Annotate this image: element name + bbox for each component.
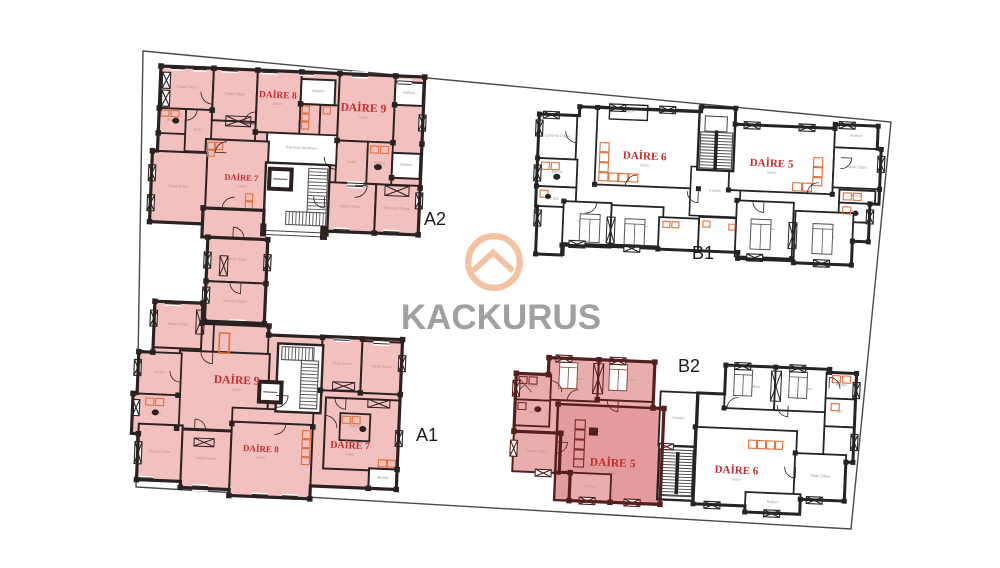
svg-text:A2: A2 <box>424 209 446 229</box>
svg-text:Salon: Salon <box>766 171 775 175</box>
svg-text:DAİRE 6: DAİRE 6 <box>623 150 668 164</box>
svg-text:B1: B1 <box>692 243 714 263</box>
svg-text:WC: WC <box>553 197 560 201</box>
svg-text:Balkon: Balkon <box>767 500 779 504</box>
svg-text:Balkon: Balkon <box>312 89 324 93</box>
svg-text:Antre: Antre <box>194 127 203 131</box>
svg-text:Salon: Salon <box>273 102 282 106</box>
svg-text:B2: B2 <box>678 356 700 376</box>
svg-text:DAİRE 7: DAİRE 7 <box>330 439 370 453</box>
svg-text:Balkon: Balkon <box>400 163 412 167</box>
svg-text:DAİRE 8: DAİRE 8 <box>243 443 280 455</box>
svg-text:Mutfak: Mutfak <box>584 484 596 488</box>
svg-text:Koridor: Koridor <box>672 416 685 421</box>
svg-text:Balkon: Balkon <box>403 91 415 95</box>
svg-text:Antre: Antre <box>155 370 164 374</box>
svg-text:Mutfak: Mutfak <box>377 476 389 480</box>
svg-text:DAİRE 6: DAİRE 6 <box>714 464 759 478</box>
svg-text:Salon: Salon <box>608 470 617 474</box>
svg-text:Salon: Salon <box>731 477 740 481</box>
svg-text:Koridor: Koridor <box>709 189 722 194</box>
svg-text:Balkon: Balkon <box>850 134 862 138</box>
svg-text:Salon: Salon <box>256 456 265 460</box>
svg-text:Salon: Salon <box>358 115 367 119</box>
svg-text:DAİRE 5: DAİRE 5 <box>749 157 794 171</box>
svg-text:Salon: Salon <box>236 184 245 188</box>
svg-text:KACKURUS: KACKURUS <box>401 298 601 337</box>
svg-text:Salon: Salon <box>232 388 241 392</box>
svg-text:Antre: Antre <box>347 160 356 164</box>
svg-text:A1: A1 <box>416 425 438 445</box>
svg-text:Banyo: Banyo <box>349 424 360 428</box>
svg-text:Salon: Salon <box>345 452 354 456</box>
svg-text:Salon: Salon <box>640 163 649 167</box>
svg-text:DAİRE 7: DAİRE 7 <box>224 172 259 183</box>
